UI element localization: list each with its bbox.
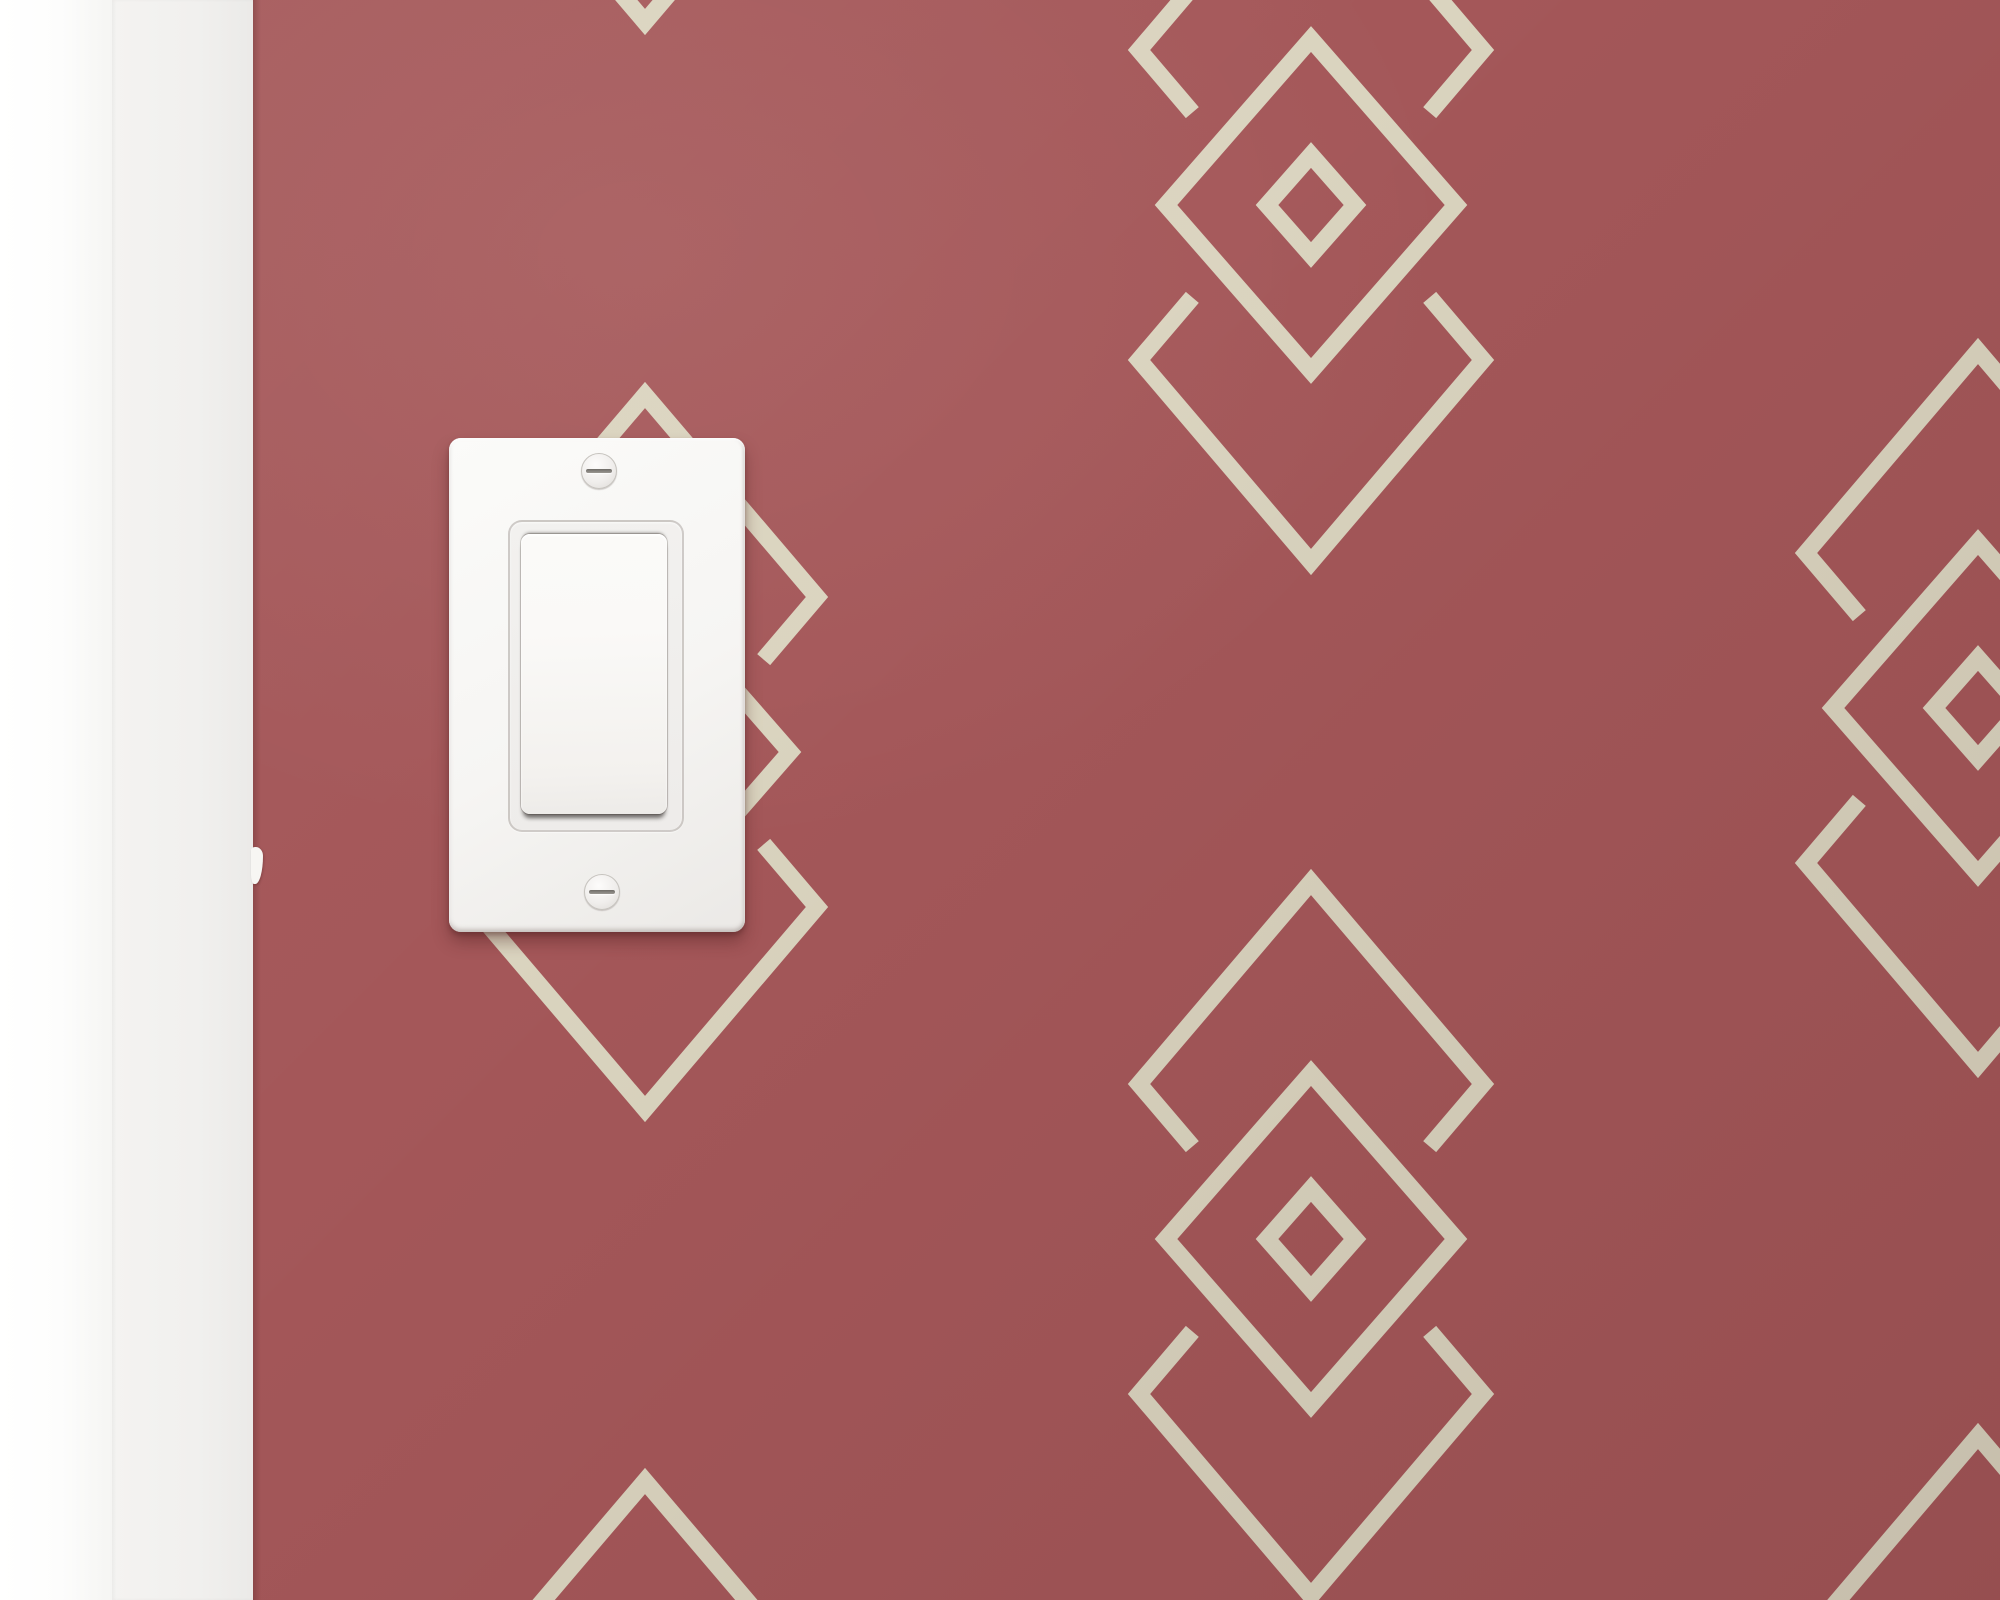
pattern-motif-line — [1934, 658, 2000, 758]
pattern-motif-line — [473, 0, 817, 22]
switch-bezel — [508, 520, 684, 832]
pattern-motif-line — [1139, 0, 1483, 113]
pattern-motif-line — [1833, 542, 2000, 874]
pattern-motif-line — [1806, 800, 2000, 1065]
screw-top-slot — [586, 469, 612, 473]
light-switch-plate — [449, 438, 745, 932]
wall-corner-shadow — [253, 0, 261, 1600]
wall-photo — [0, 0, 2000, 1600]
screw-bottom — [584, 874, 620, 910]
pattern-motif-line — [1139, 1331, 1483, 1596]
pattern-motif-line — [1166, 1073, 1456, 1405]
rocker-switch — [521, 534, 667, 814]
pattern-motif-line — [1139, 297, 1483, 562]
pattern-motif-line — [1806, 1436, 2000, 1600]
pattern-motif-line — [1267, 1189, 1355, 1289]
screw-top — [581, 453, 617, 489]
pattern-motif-line — [473, 1481, 817, 1600]
pattern-motif-line — [1806, 351, 2000, 616]
trim-side-face — [112, 0, 253, 1600]
pattern-motif-line — [1166, 39, 1456, 371]
pattern-motif-line — [1267, 155, 1355, 255]
pattern-motif-line — [1139, 882, 1483, 1147]
trim-front-face — [0, 0, 112, 1600]
screw-bottom-slot — [589, 890, 615, 894]
wallpaper-pattern — [0, 0, 2000, 1600]
